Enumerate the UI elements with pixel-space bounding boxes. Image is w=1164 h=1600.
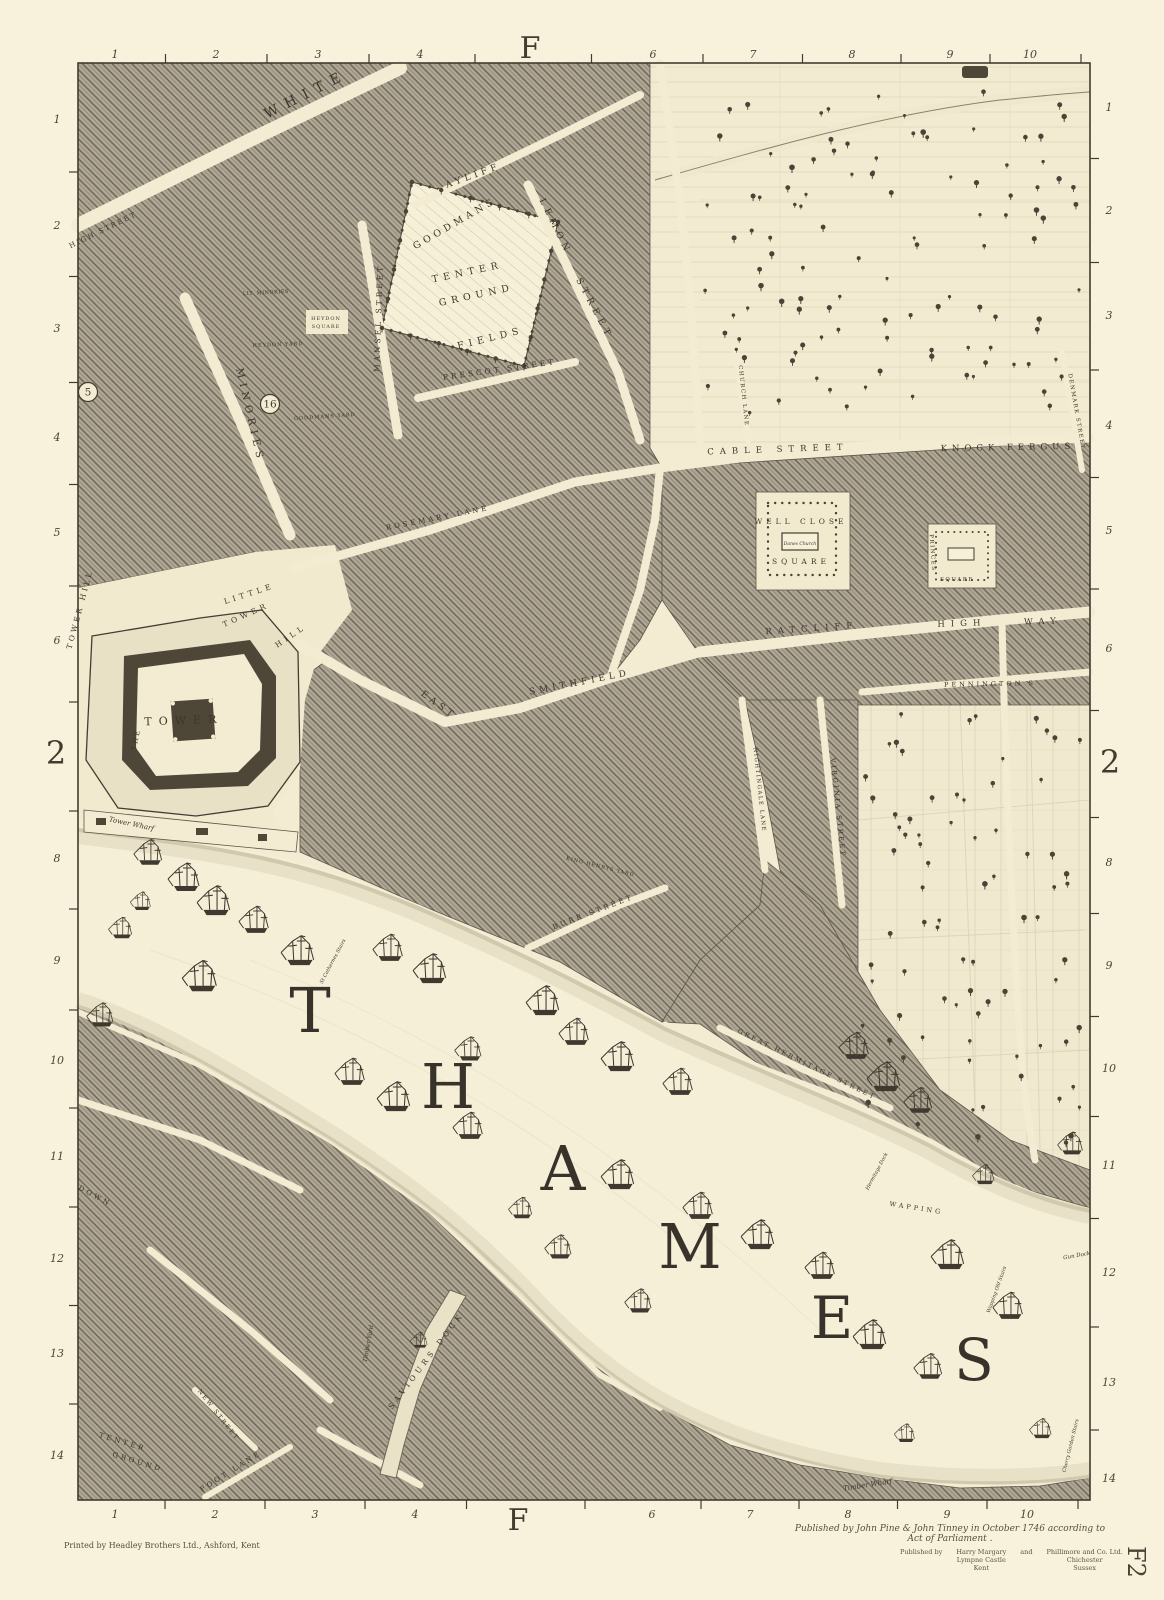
grid-number-top: 3 (315, 48, 322, 61)
grid-number-top: 8 (849, 48, 856, 61)
map-sheet-page: THAMES WHITEHIGH STREETAYLIFFLEMONSTREET… (0, 0, 1164, 1600)
grid-number-right: 8 (1106, 856, 1113, 869)
grid-number-left: 1 (54, 113, 61, 126)
river-letter-a: A (540, 1132, 587, 1205)
grid-number-top: 1 (112, 48, 119, 61)
river-letter-h: H (421, 1050, 475, 1123)
grid-number-top: 9 (947, 48, 954, 61)
sheet-row-right: 2 (1100, 743, 1120, 781)
grid-number-right: 5 (1106, 524, 1113, 537)
grid-number-bottom: 6 (649, 1508, 656, 1521)
grid-number-bottom: 1 (112, 1508, 119, 1521)
grid-number-bottom: 8 (845, 1508, 852, 1521)
grid-number-bottom: 2 (211, 1508, 219, 1521)
sheet-letter-bottom: F (508, 1503, 529, 1538)
grid-number-bottom: 9 (944, 1508, 951, 1521)
river-letter-s: S (954, 1326, 994, 1394)
circled-number: 16 (263, 399, 277, 411)
grid-number-left: 11 (50, 1150, 64, 1163)
grid-number-right: 1 (1106, 101, 1113, 114)
grid-number-left: 8 (54, 852, 61, 865)
grid-number-left: 10 (50, 1054, 64, 1067)
grid-number-right: 4 (1105, 419, 1113, 432)
grid-number-bottom: 10 (1020, 1508, 1034, 1521)
map-label-tower: TOWER (144, 713, 223, 729)
grid-number-left: 12 (50, 1252, 64, 1265)
grid-number-right: 2 (1105, 204, 1113, 217)
grid-number-left: 9 (54, 954, 61, 967)
grid-number-bottom: 7 (747, 1508, 754, 1521)
well-close-square (756, 492, 850, 590)
sheet-row-left: 2 (46, 734, 66, 772)
grid-number-left: 3 (54, 322, 61, 335)
map-label-square: SQUARE (940, 577, 974, 583)
grid-number-right: 9 (1106, 959, 1113, 972)
map-label-well-close: WELL CLOSE (754, 517, 847, 526)
circled-number: 5 (85, 387, 92, 399)
river-letter-e: E (811, 1284, 853, 1352)
grid-number-top: 2 (212, 48, 220, 61)
publisher-imprint: Published by Harry Margary Lympne Castle… (900, 1548, 1123, 1572)
grid-number-top: 10 (1023, 48, 1037, 61)
publisher-label: Published by (900, 1548, 942, 1572)
printer-imprint: Printed by Headley Brothers Ltd., Ashfor… (64, 1541, 260, 1550)
river-letter-t: T (289, 974, 330, 1047)
fields-northeast (650, 63, 1090, 450)
grid-number-top: 6 (650, 48, 657, 61)
grid-number-bottom: 4 (411, 1508, 419, 1521)
publication-imprint: Published by John Pine & John Tinney in … (790, 1524, 1110, 1544)
grid-number-left: 2 (53, 219, 61, 232)
publisher-phillimore: Phillimore and Co. Ltd. Chichester Susse… (1047, 1548, 1123, 1572)
map-label-way: WAY (1024, 616, 1062, 627)
grid-number-right: 12 (1102, 1266, 1116, 1279)
plate-reference: F2 (1122, 1544, 1150, 1580)
grid-number-right: 11 (1102, 1159, 1116, 1172)
map-label-heydon: HEYDON (311, 316, 341, 322)
sheet-letter-top: F (520, 31, 541, 66)
grid-number-right: 14 (1102, 1472, 1116, 1485)
grid-number-right: 3 (1106, 309, 1113, 322)
grid-number-left: 6 (54, 634, 61, 647)
grid-number-right: 10 (1102, 1062, 1116, 1075)
grid-number-left: 14 (50, 1449, 64, 1462)
grid-number-left: 13 (50, 1347, 64, 1360)
map-label-danes-church: Danes Church (783, 541, 817, 547)
grid-number-left: 5 (54, 526, 61, 539)
grid-number-right: 6 (1106, 642, 1113, 655)
engraved-map-canvas: THAMES WHITEHIGH STREETAYLIFFLEMONSTREET… (0, 0, 1164, 1600)
publisher-margary: Harry Margary Lympne Castle Kent (956, 1548, 1006, 1572)
grid-number-top: 7 (750, 48, 757, 61)
map-label-square: SQUARE (312, 324, 341, 330)
map-label-pennington-s: PENNINGTON S (944, 679, 1036, 689)
map-label-high: HIGH (937, 618, 986, 630)
map-label-square: SQUARE (772, 557, 830, 566)
grid-number-top: 4 (416, 48, 424, 61)
grid-number-left: 4 (53, 431, 61, 444)
grid-number-bottom: 3 (312, 1508, 319, 1521)
publisher-conjunction: and (1020, 1548, 1032, 1572)
river-letter-m: M (658, 1210, 721, 1283)
grid-number-right: 13 (1102, 1376, 1116, 1389)
